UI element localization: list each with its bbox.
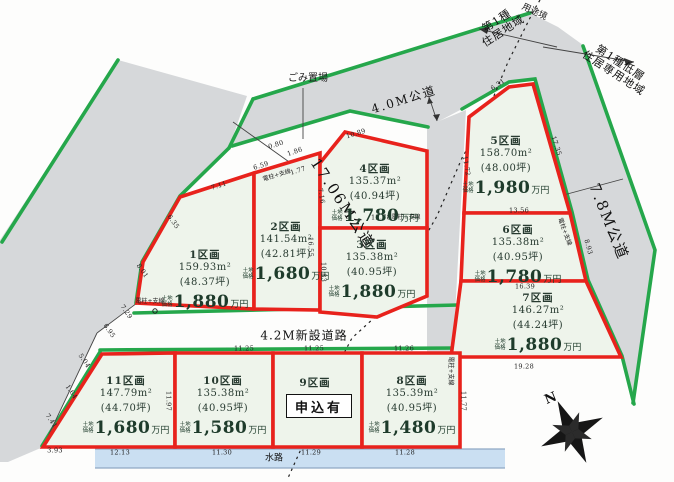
plot-1-label: 1区画 159.93m² (48.37坪) 土地価格1,880万円 [162, 247, 249, 312]
plot-tsubo: (48.37坪) [162, 273, 249, 288]
dim-label: 11.30 [212, 450, 232, 457]
plot-price: 土地価格1,480万円 [369, 418, 456, 438]
plot-area: 158.70m² [463, 148, 550, 159]
subdivision-map: 17.06M公道 4.0M公道 7.8M公道 4.2M新設道路 水路 第1種 住… [0, 0, 674, 482]
plot-2-label: 2区画 141.54m² (42.81坪) 土地価格1,680万円 [243, 219, 330, 284]
plot-area: 146.27m² [495, 305, 582, 316]
plot-4-label: 4区画 135.37m² (40.94坪) 土地価格1,780万円 [332, 161, 419, 226]
plot-tsubo: (40.94坪) [332, 187, 419, 202]
plot-name: 8区画 [369, 373, 456, 388]
plot-5-label: 5区画 158.70m² (48.00坪) 土地価格1,980万円 [463, 133, 550, 198]
plot-name: 2区画 [243, 219, 330, 234]
plot-area: 135.39m² [369, 388, 456, 399]
plot-9-label: 9区画 [299, 375, 330, 390]
plot-area: 141.54m² [243, 234, 330, 245]
dim-label: 11.26 [394, 346, 414, 353]
plot-name: 5区画 [463, 133, 550, 148]
plot-area: 135.38m² [329, 252, 416, 263]
plot-11-label: 11区画 147.79m² (44.70坪) 土地価格1,680万円 [83, 373, 170, 438]
plot-area: 135.38m² [475, 237, 562, 248]
plot-7-label: 7区画 146.27m² (44.24坪) 土地価格1,880万円 [495, 290, 582, 355]
plot-price: 土地価格1,680万円 [243, 264, 330, 284]
dim-label: 12.13 [110, 450, 130, 457]
dim-label: 11.29 [301, 450, 321, 457]
plot-tsubo: (44.70坪) [83, 399, 170, 414]
plot-price: 土地価格1,780万円 [332, 206, 419, 226]
plot-3-label: 3区画 135.38m² (40.95坪) 土地価格1,880万円 [329, 237, 416, 302]
plot-area: 135.38m² [180, 388, 267, 399]
plot-area: 135.37m² [332, 176, 419, 187]
plot-price: 土地価格1,580万円 [180, 418, 267, 438]
plot-tsubo: (48.00坪) [463, 159, 550, 174]
dim-label: 11.77 [460, 391, 467, 411]
application-received-badge: 申込有 [286, 394, 352, 418]
plot-name: 10区画 [180, 373, 267, 388]
plot-name: 3区画 [329, 237, 416, 252]
plot-price: 土地価格1,980万円 [463, 178, 550, 198]
dim-label: 11.25 [234, 346, 254, 353]
waterway-label: 水路 [265, 454, 283, 463]
plot-tsubo: (40.95坪) [369, 399, 456, 414]
plot-tsubo: (42.81坪) [243, 245, 330, 260]
utility-label-1: 電柱+支線 [135, 299, 164, 305]
plot-name: 4区画 [332, 161, 419, 176]
garbage-area-label: ごみ置場 [288, 74, 328, 85]
plot-name: 9区画 [299, 375, 330, 390]
dim-label: 13.56 [509, 208, 529, 215]
plot-name: 11区画 [83, 373, 170, 388]
plot-tsubo: (40.95坪) [180, 399, 267, 414]
dim-label: 19.28 [514, 364, 534, 371]
dim-label: 11.28 [395, 450, 415, 457]
plot-tsubo: (40.95坪) [329, 263, 416, 278]
plot-area: 159.93m² [162, 262, 249, 273]
dim-label: 11.25 [304, 346, 324, 353]
dim-label: 7.16 [316, 188, 325, 205]
compass-rose-icon [527, 387, 617, 477]
plot-area: 147.79m² [83, 388, 170, 399]
plot-name: 1区画 [162, 247, 249, 262]
plot-price: 土地価格1,680万円 [83, 418, 170, 438]
plot-price: 土地価格1,780万円 [475, 267, 562, 287]
plot-tsubo: (44.24坪) [495, 316, 582, 331]
plot-price: 土地価格1,880万円 [329, 282, 416, 302]
plot-price: 土地価格1,880万円 [495, 335, 582, 355]
plot-price: 土地価格1,880万円 [162, 292, 249, 312]
plot-name: 6区画 [475, 222, 562, 237]
plot-6-label: 6区画 135.38m² (40.95坪) 土地価格1,780万円 [475, 222, 562, 287]
plot-tsubo: (40.95坪) [475, 248, 562, 263]
road-new-label: 4.2M新設道路 [260, 330, 347, 343]
plot-8-label: 8区画 135.39m² (40.95坪) 土地価格1,480万円 [369, 373, 456, 438]
dim-label: 3.93 [47, 448, 63, 455]
plot-name: 7区画 [495, 290, 582, 305]
plot-10-label: 10区画 135.38m² (40.95坪) 土地価格1,580万円 [180, 373, 267, 438]
